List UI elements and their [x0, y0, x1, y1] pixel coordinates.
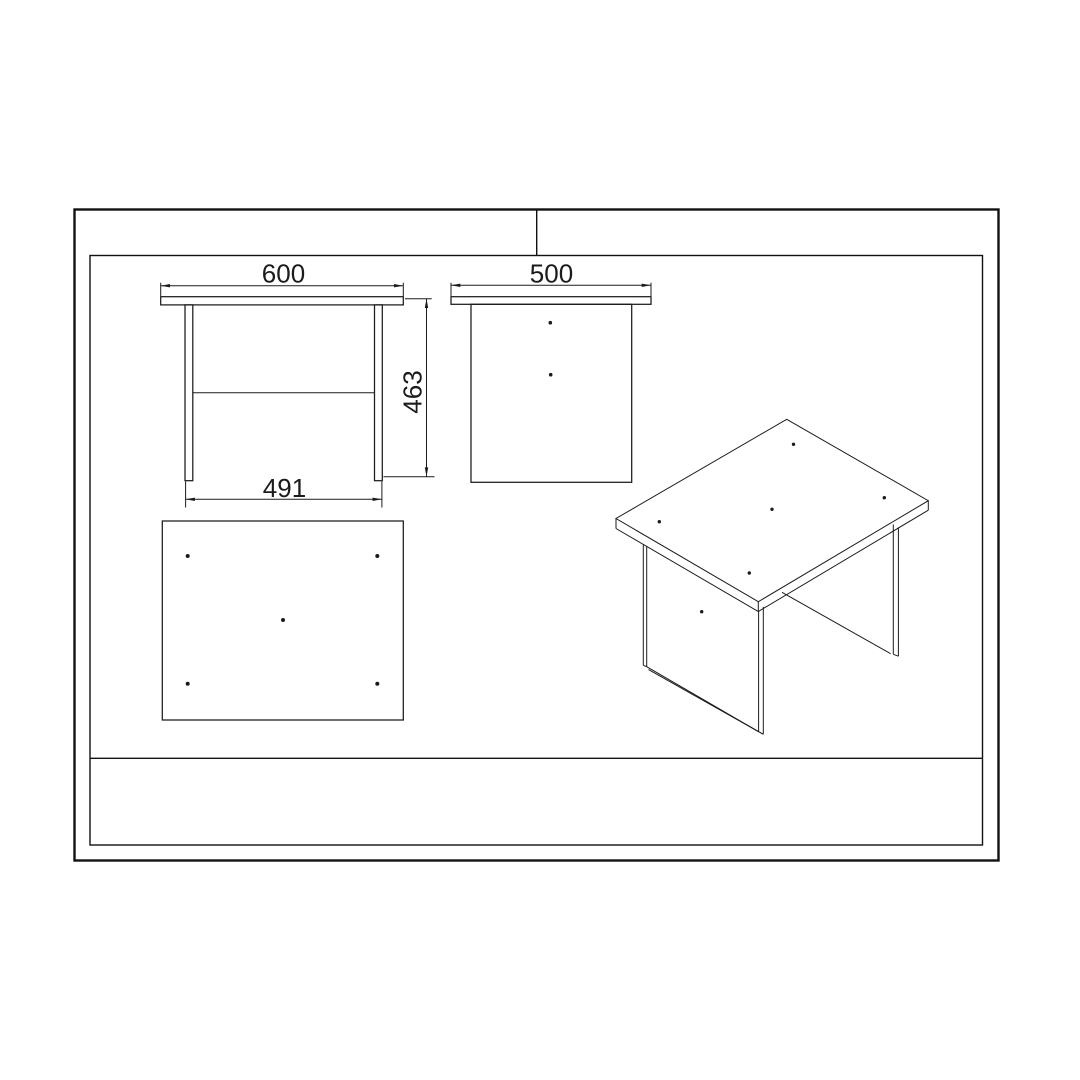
- technical-drawing: 600 463 491: [0, 0, 1080, 1080]
- sheet-frame: [75, 210, 999, 861]
- fastener-dot: [700, 610, 703, 613]
- inner-border: [90, 256, 983, 846]
- fastener-dot: [883, 496, 886, 499]
- arrowhead-right: [373, 498, 382, 501]
- arrowhead-right: [394, 284, 403, 287]
- outer-border: [75, 210, 999, 861]
- arrowhead-left: [186, 498, 195, 501]
- fastener-dot: [770, 508, 773, 511]
- dimension-front-width: 600: [161, 259, 404, 297]
- arrowhead-right: [642, 284, 651, 287]
- fastener-dot: [658, 520, 661, 523]
- fastener-dot: [375, 554, 379, 558]
- fastener-dot: [549, 373, 553, 377]
- dimension-side-depth-label: 500: [530, 259, 573, 289]
- dimension-front-width-label: 600: [262, 259, 305, 289]
- iso-right-leg-bottom: [893, 654, 898, 656]
- dimension-leg-span: 491: [186, 473, 382, 508]
- side-view: 500: [451, 259, 651, 483]
- side-tabletop: [451, 297, 651, 305]
- iso-left-leg-bottom-corner: [643, 665, 646, 666]
- iso-right-leg: [893, 525, 898, 657]
- dimension-height-label: 463: [398, 370, 428, 413]
- arrowhead-left: [161, 284, 170, 287]
- arrowhead-left: [451, 284, 460, 287]
- drawing-sheet: 600 463 491: [0, 0, 1080, 1080]
- iso-tabletop-edge-bottom: [616, 510, 928, 611]
- dimension-leg-span-label: 491: [263, 473, 306, 503]
- iso-left-leg-bottom-back: [649, 670, 764, 735]
- iso-stretcher-bottom-edge: [782, 592, 891, 653]
- top-view: [162, 521, 403, 720]
- dimension-height: 463: [384, 299, 435, 477]
- fastener-dot: [792, 443, 795, 446]
- front-left-leg: [185, 305, 193, 481]
- fastener-dot: [281, 618, 285, 622]
- fastener-dot: [186, 554, 190, 558]
- fastener-dot: [375, 682, 379, 686]
- front-view: 600 463 491: [161, 259, 435, 508]
- title-block: [90, 758, 983, 845]
- iso-left-leg: [643, 544, 763, 734]
- fastener-dot: [748, 571, 751, 574]
- front-tabletop: [161, 297, 404, 305]
- arrowhead-top: [425, 299, 428, 308]
- fastener-dot: [549, 321, 553, 325]
- front-right-leg: [375, 305, 383, 481]
- dimension-side-depth: 500: [451, 259, 651, 296]
- isometric-view: [616, 419, 928, 734]
- fastener-dot: [186, 682, 190, 686]
- arrowhead-bottom: [425, 467, 428, 476]
- side-panel: [471, 304, 632, 482]
